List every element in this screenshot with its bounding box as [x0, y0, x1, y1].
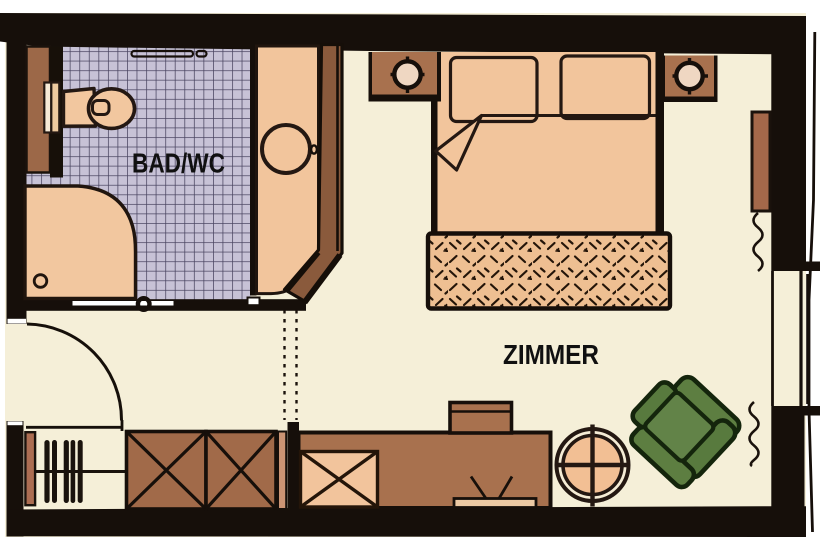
svg-text:BAD/WC: BAD/WC	[132, 148, 225, 179]
svg-text:ZIMMER: ZIMMER	[503, 339, 599, 370]
